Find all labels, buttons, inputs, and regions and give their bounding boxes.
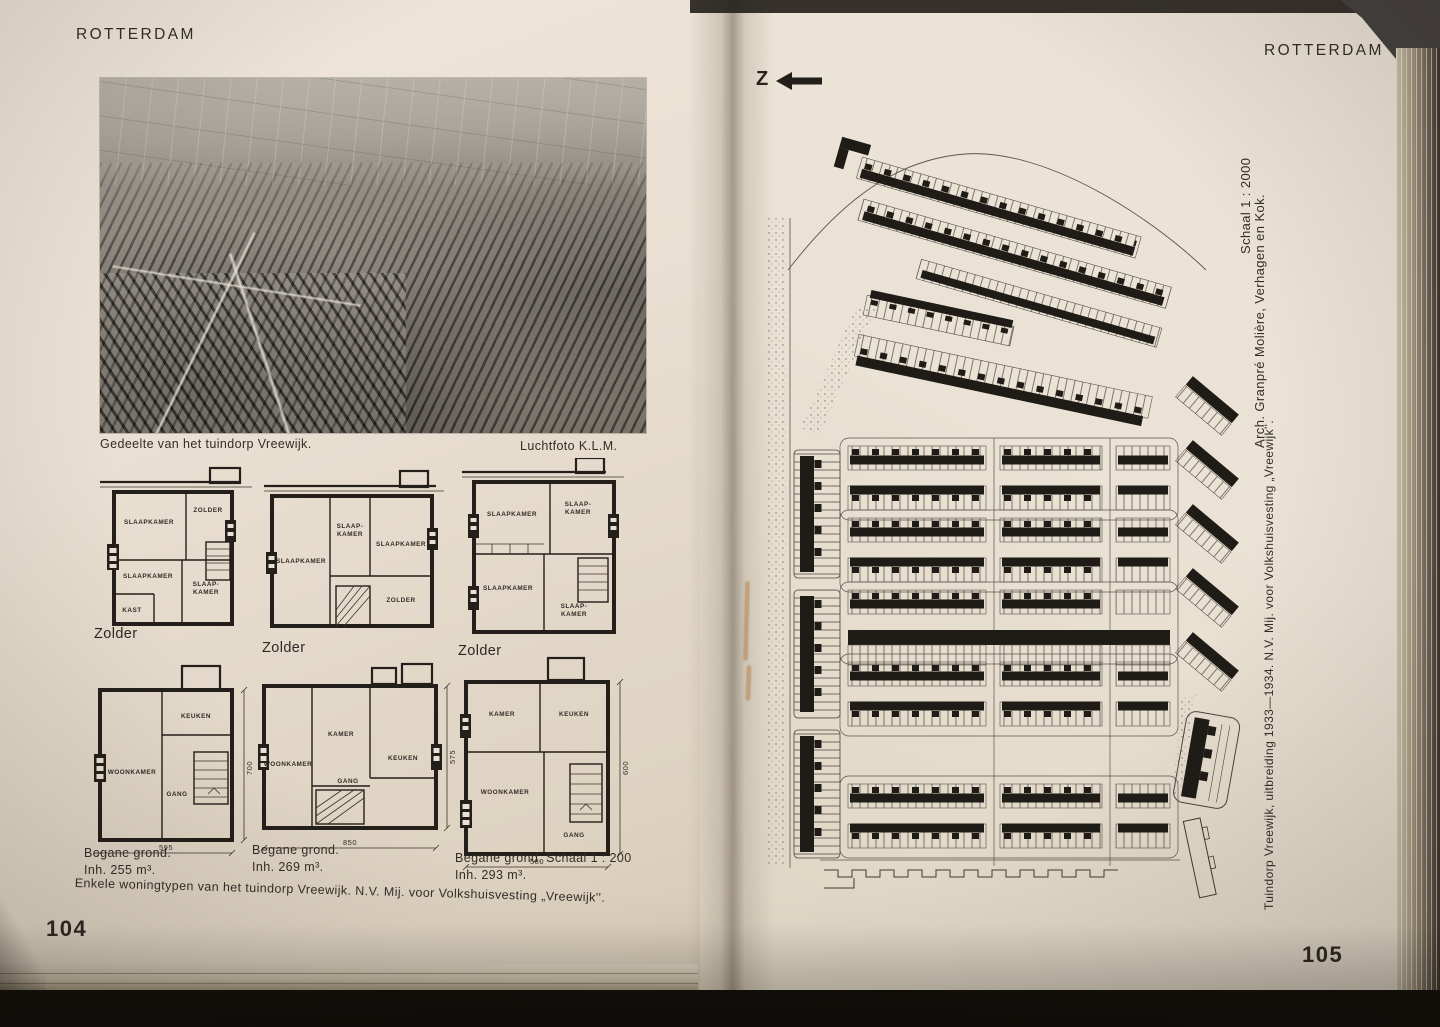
photo-credit: Luchtfoto K.L.M. bbox=[520, 439, 617, 453]
page-header-left: ROTTERDAM bbox=[76, 26, 196, 44]
room-label: ZOLDER bbox=[193, 507, 222, 514]
table-background bbox=[0, 990, 1440, 1027]
room-label: WOONKAMER bbox=[264, 761, 313, 768]
wall-pier bbox=[468, 586, 479, 610]
housing-band bbox=[840, 510, 1178, 592]
caption-scale: Schaal 1 : 2000 bbox=[1238, 158, 1253, 254]
stepped-edge bbox=[824, 870, 1118, 877]
housing-band-solid bbox=[840, 582, 1178, 665]
site-plan bbox=[760, 98, 1245, 908]
room-label: GANG bbox=[166, 791, 187, 798]
corner-building bbox=[1172, 694, 1241, 898]
ground-caption-1-line1: Begane grond. bbox=[84, 845, 171, 862]
book-spread-photo: ROTTERDAM Gedeelte van het tuindorp Vree… bbox=[0, 0, 1440, 1027]
room-label: SLAAP- bbox=[565, 501, 592, 508]
room-label: KEUKEN bbox=[181, 713, 211, 720]
room-label: KAMER bbox=[561, 611, 587, 618]
room-label: KAMER bbox=[565, 509, 591, 516]
north-arrow: Z bbox=[756, 66, 828, 96]
ground-plan-2: WOONKAMER KAMER KEUKEN GANG 850 575 bbox=[250, 658, 460, 856]
ground-plan-1: KEUKEN WOONKAMER GANG 595 700 bbox=[82, 660, 262, 860]
wall-pier bbox=[460, 800, 472, 828]
ground-caption-2-line2: Inh. 269 m³. bbox=[252, 859, 339, 876]
stairs bbox=[194, 752, 228, 804]
room-label: GANG bbox=[337, 778, 358, 785]
tree-strip bbox=[766, 216, 786, 866]
page-number-left: 104 bbox=[46, 916, 87, 942]
dimension-label: 850 bbox=[343, 838, 357, 847]
housing-band bbox=[840, 776, 1178, 858]
attic-plan-3: SLAAPKAMER SLAAP- KAMER SLAAPKAMER SLAAP… bbox=[456, 458, 631, 642]
photo-caption: Gedeelte van het tuindorp Vreewijk. bbox=[100, 437, 312, 451]
dimension-label: 600 bbox=[621, 761, 630, 775]
room-label: KAST bbox=[122, 607, 141, 614]
stairs bbox=[206, 542, 230, 580]
wall-pier bbox=[427, 528, 438, 550]
room-label: WOONKAMER bbox=[108, 769, 157, 776]
stairs bbox=[578, 558, 608, 602]
zolder-label-1: Zolder bbox=[94, 626, 138, 642]
caption-title: Tuindorp Vreewijk, uitbreiding 1933—1934… bbox=[1262, 420, 1276, 910]
diagonal-housing-rows-2 bbox=[854, 293, 1162, 422]
tree-wedge bbox=[800, 304, 878, 434]
ground-caption-2-line1: Begane grond. bbox=[252, 842, 339, 859]
room-label: SLAAP- bbox=[193, 581, 220, 588]
wall-pier bbox=[94, 754, 106, 782]
aerial-photo bbox=[100, 78, 646, 433]
attic-plan-2: SLAAPKAMER SLAAP- KAMER SLAAPKAMER ZOLDE… bbox=[258, 468, 448, 638]
room-label: SLAAPKAMER bbox=[376, 541, 426, 548]
room-label: GANG bbox=[563, 832, 584, 839]
page-edges-bottom bbox=[0, 964, 698, 992]
stairs bbox=[336, 586, 370, 626]
wall-pier bbox=[468, 514, 479, 538]
room-label: KAMER bbox=[328, 731, 354, 738]
room-label: SLAAPKAMER bbox=[123, 573, 173, 580]
north-label: Z bbox=[756, 68, 768, 91]
attic-plan-1: SLAAPKAMER ZOLDER SLAAPKAMER SLAAP- KAME… bbox=[92, 466, 257, 638]
room-label: KEUKEN bbox=[559, 711, 589, 718]
zolder-label-2: Zolder bbox=[262, 640, 306, 656]
dimension-lines bbox=[463, 679, 623, 870]
wall-pier bbox=[431, 744, 442, 770]
page-header-right: ROTTERDAM bbox=[1264, 42, 1384, 60]
room-label: ZOLDER bbox=[386, 597, 415, 604]
left-page: ROTTERDAM Gedeelte van het tuindorp Vree… bbox=[0, 0, 700, 1000]
room-label: WOONKAMER bbox=[481, 789, 530, 796]
ground-caption-3-line2: Inh. 293 m³. bbox=[455, 867, 632, 884]
photo-town-texture-2 bbox=[100, 273, 406, 433]
room-label: KAMER bbox=[489, 711, 515, 718]
housing-band bbox=[840, 654, 1178, 736]
shadow-corner bbox=[0, 880, 46, 1027]
room-label: SLAAPKAMER bbox=[483, 585, 533, 592]
ground-plan-3: KAMER KEUKEN WOONKAMER GANG 580 600 bbox=[450, 652, 645, 874]
ground-caption-3-line1: Begane grond. Schaal 1 : 200 bbox=[455, 850, 632, 867]
page-edges-right bbox=[1396, 48, 1440, 1000]
stairs bbox=[570, 764, 602, 822]
room-label: KAMER bbox=[193, 589, 219, 596]
left-housing-column bbox=[794, 450, 840, 858]
room-label: SLAAPKAMER bbox=[124, 519, 174, 526]
table-edge-top bbox=[690, 0, 1440, 13]
wall-pier bbox=[107, 544, 119, 570]
wall-pier bbox=[225, 520, 236, 542]
ground-caption-1: Begane grond. Inh. 255 m³. bbox=[84, 845, 171, 879]
caption-architect: Arch. Granpré Molière, Verhagen en Kok. bbox=[1252, 194, 1267, 448]
room-label: KAMER bbox=[337, 531, 363, 538]
room-label: SLAAP- bbox=[337, 523, 364, 530]
north-arrow-icon bbox=[772, 66, 828, 96]
wall-pier bbox=[608, 514, 619, 538]
housing-band bbox=[840, 438, 1178, 520]
page-number-right: 105 bbox=[1302, 942, 1343, 968]
room-label: SLAAP- bbox=[561, 603, 588, 610]
room-label: SLAAPKAMER bbox=[276, 558, 326, 565]
right-diagonal-blocks bbox=[1176, 376, 1239, 691]
room-label: KEUKEN bbox=[388, 755, 418, 762]
wall-pier bbox=[460, 714, 471, 738]
ground-caption-3: Begane grond. Schaal 1 : 200 Inh. 293 m³… bbox=[455, 850, 632, 884]
stairs bbox=[316, 790, 364, 824]
room-label: SLAAPKAMER bbox=[487, 511, 537, 518]
ground-caption-2: Begane grond. Inh. 269 m³. bbox=[252, 842, 339, 876]
